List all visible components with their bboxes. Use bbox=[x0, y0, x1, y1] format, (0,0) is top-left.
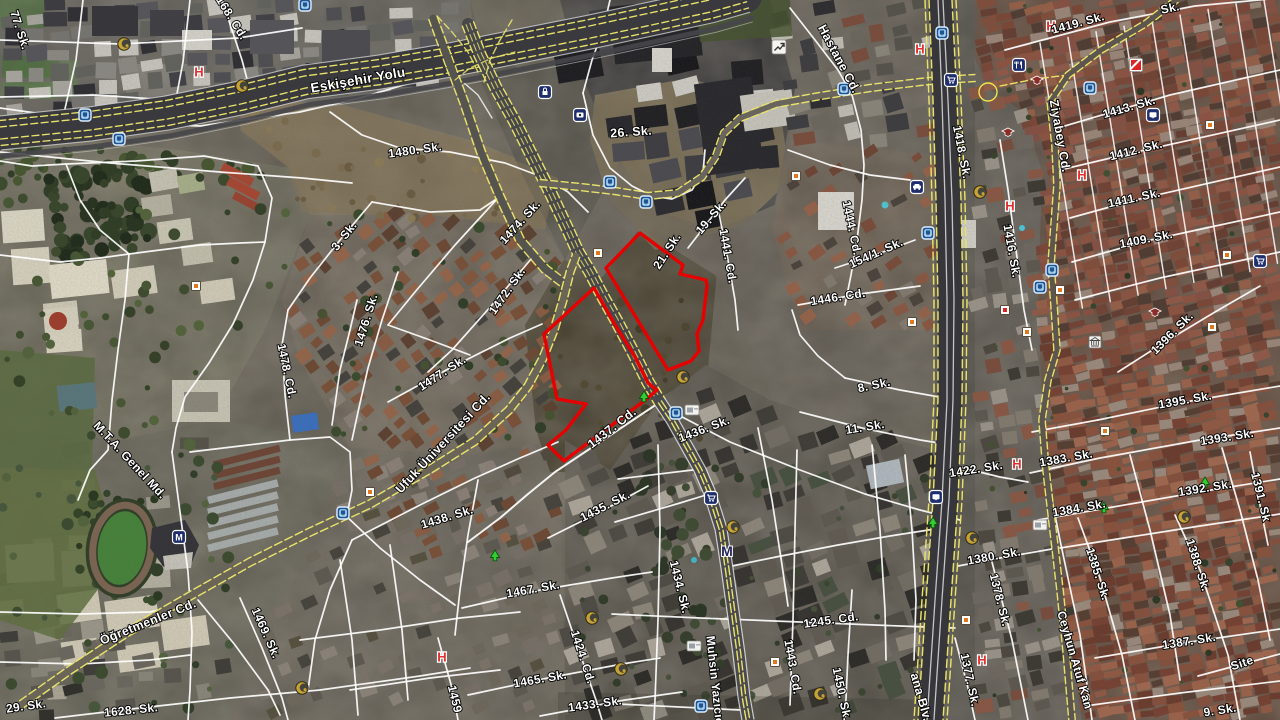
svg-text:H: H bbox=[1012, 457, 1021, 472]
svg-text:H: H bbox=[915, 42, 924, 57]
svg-text:M: M bbox=[721, 543, 733, 559]
svg-text:H: H bbox=[1077, 168, 1086, 183]
svg-text:26. Sk.: 26. Sk. bbox=[610, 124, 653, 141]
svg-text:H: H bbox=[1005, 199, 1014, 214]
svg-text:M: M bbox=[175, 533, 183, 543]
svg-text:H: H bbox=[437, 650, 446, 665]
svg-text:H: H bbox=[977, 653, 986, 668]
svg-text:H: H bbox=[194, 65, 203, 80]
